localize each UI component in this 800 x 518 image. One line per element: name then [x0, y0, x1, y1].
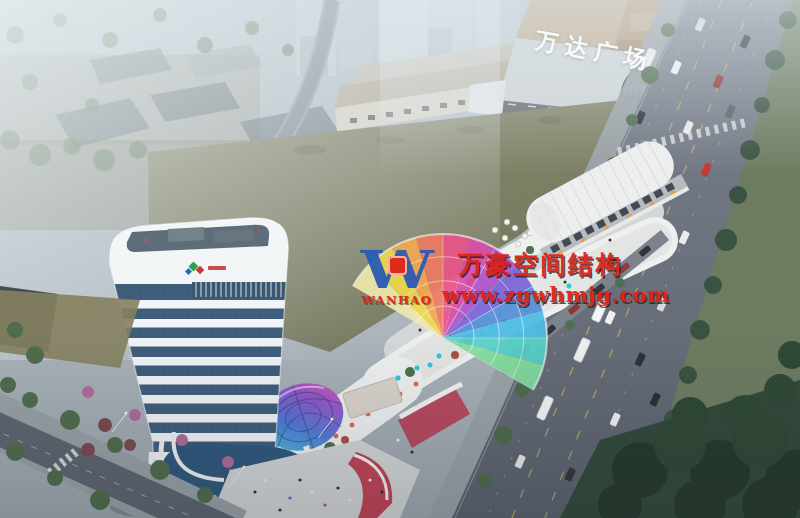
- aerial-rendering: 万达广场 W WANHAO 万豪空间结构 www.zgwhmjg.com: [0, 0, 800, 518]
- watermark-company-name: 万豪空间结构: [442, 248, 670, 281]
- wanhao-logo: W WANHAO: [354, 248, 440, 307]
- watermark-text: 万豪空间结构 www.zgwhmjg.com: [442, 248, 670, 307]
- watermark: W WANHAO 万豪空间结构 www.zgwhmjg.com: [354, 248, 670, 307]
- dusk-vignette: [0, 330, 800, 518]
- watermark-url: www.zgwhmjg.com: [442, 282, 670, 307]
- wanhao-logo-badge-icon: [388, 256, 407, 275]
